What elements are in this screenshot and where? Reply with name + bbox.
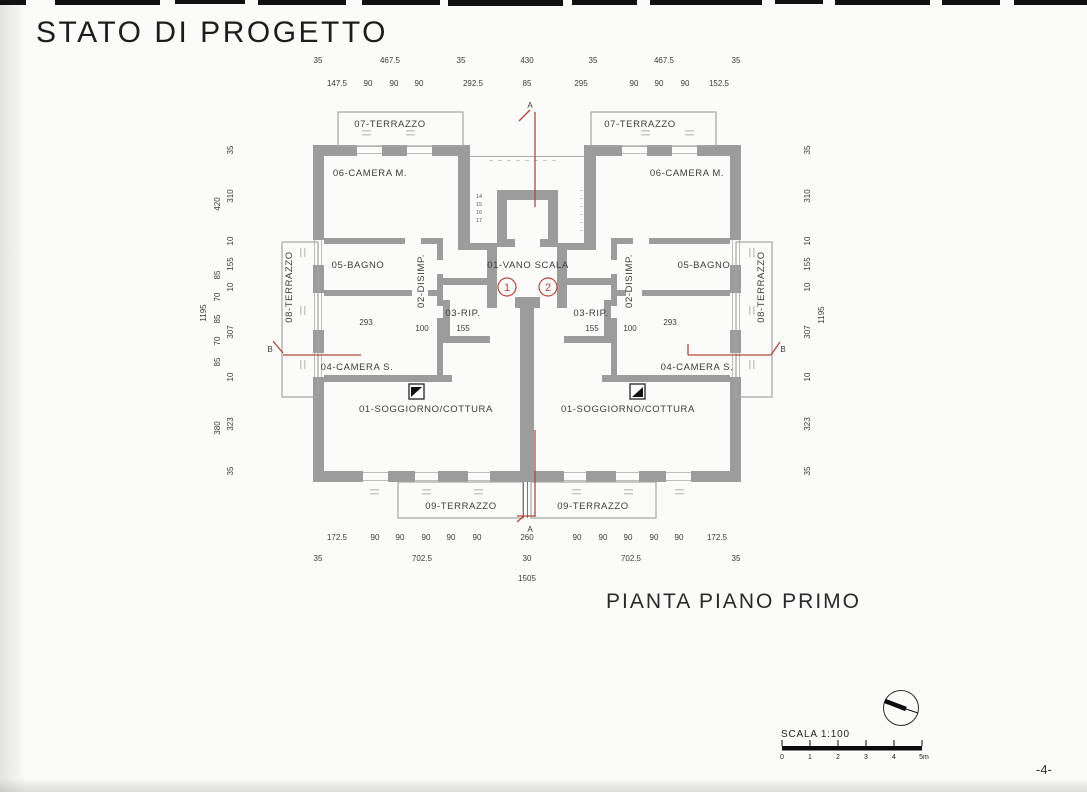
room-label-vano-scala: 01-VANO SCALA — [487, 260, 569, 271]
dimensions-interior: 293 293 100 155 100 155 — [359, 318, 677, 333]
room-label-camera-s-right: 04-CAMERA S. — [661, 362, 734, 373]
dim-top2-4: 292.5 — [463, 79, 484, 88]
door-number-2: 2 — [539, 278, 557, 296]
dim-bot1-6: 260 — [520, 533, 534, 542]
dim-bot1-11: 90 — [675, 533, 684, 542]
dim-left-total: 1195 — [199, 304, 208, 322]
room-label-terrace-side-left: 08-TERRAZZO — [284, 251, 295, 323]
dim-top1-4: 35 — [589, 56, 598, 65]
stair-step-16: 16 — [476, 210, 482, 216]
dim-bot1-7: 90 — [573, 533, 582, 542]
dim-bot2-4: 35 — [732, 554, 741, 563]
dimensions-top: 35 467.5 35 430 35 467.5 35 147.5 90 90 … — [314, 56, 741, 88]
dim-li-0: 35 — [226, 145, 235, 154]
room-label-rip-left: 03-RIP. — [445, 308, 480, 319]
stair-step-17: 17 — [476, 218, 482, 224]
dim-li-2: 10 — [226, 236, 235, 245]
sheet-title: STATO DI PROGETTO — [36, 16, 388, 49]
dim-bot1-5: 90 — [473, 533, 482, 542]
dim-bot1-8: 90 — [599, 533, 608, 542]
room-label-terrace-side-right: 08-TERRAZZO — [756, 251, 767, 323]
scale-bar: SCALA 1:100 0 1 2 3 4 5m — [780, 729, 929, 761]
dim-right-293: 293 — [663, 318, 677, 327]
room-label-bagno-left: 05-BAGNO — [332, 260, 385, 271]
dim-bot1-3: 90 — [422, 533, 431, 542]
dim-li-4: 10 — [226, 282, 235, 291]
dim-bot1-0: 172.5 — [327, 533, 348, 542]
dim-ri-8: 35 — [803, 466, 812, 475]
room-label-camera-m-left: 06-CAMERA M. — [333, 168, 407, 179]
drawing-sheet: STATO DI PROGETTO PIANTA PIANO PRIMO -4- — [0, 0, 1087, 792]
room-label-camera-m-right: 06-CAMERA M. — [650, 168, 724, 179]
dim-right-total: 1195 — [817, 306, 826, 324]
scale-label: SCALA 1:100 — [781, 729, 850, 740]
dim-top1-2: 35 — [457, 56, 466, 65]
section-marker-b-left: B — [267, 345, 272, 354]
page-number: -4- — [1036, 762, 1052, 777]
scale-tick-0: 0 — [780, 754, 784, 761]
dim-lm-5: 85 — [213, 357, 222, 366]
dim-ri-1: 310 — [803, 189, 812, 203]
dim-right-100: 100 — [623, 324, 637, 333]
dim-bot2-3: 702.5 — [621, 554, 642, 563]
dim-left-155: 155 — [456, 324, 470, 333]
dim-li-8: 35 — [226, 466, 235, 475]
room-label-rip-right: 03-RIP. — [573, 308, 608, 319]
dim-ri-4: 10 — [803, 282, 812, 291]
dim-top2-3: 90 — [415, 79, 424, 88]
dim-top1-0: 35 — [314, 56, 323, 65]
dim-li-1: 310 — [226, 189, 235, 203]
dim-bot1-1: 90 — [371, 533, 380, 542]
dim-ri-3: 155 — [803, 257, 812, 271]
stair-step-15: 15 — [476, 202, 482, 208]
dim-top1-6: 35 — [732, 56, 741, 65]
dim-ri-5: 307 — [803, 325, 812, 339]
dim-top1-5: 467.5 — [654, 56, 675, 65]
dim-top2-6: 295 — [574, 79, 588, 88]
dim-top2-2: 90 — [390, 79, 399, 88]
dim-lm-4: 70 — [213, 336, 222, 345]
stair-step-14: 14 — [476, 194, 482, 200]
scan-edge-top — [0, 0, 1087, 6]
scale-tick-4: 4 — [892, 754, 896, 761]
room-label-soggiorno-left: 01-SOGGIORNO/COTTURA — [359, 404, 493, 415]
dim-top2-8: 90 — [655, 79, 664, 88]
dim-bot1-9: 90 — [624, 533, 633, 542]
north-arrow — [884, 691, 919, 726]
room-label-camera-s-left: 04-CAMERA S. — [321, 362, 394, 373]
dim-li-5: 307 — [226, 325, 235, 339]
door-number-1: 1 — [498, 278, 516, 296]
dim-lm-2: 70 — [213, 292, 222, 301]
plan-title: PIANTA PIANO PRIMO — [606, 590, 861, 613]
scale-tick-1: 1 — [808, 754, 812, 761]
scale-tick-3: 3 — [864, 754, 868, 761]
floor-plan-drawing: STATO DI PROGETTO PIANTA PIANO PRIMO -4- — [0, 0, 1087, 792]
dim-bot2-2: 30 — [523, 554, 532, 563]
panel-symbol-right — [630, 384, 645, 399]
dim-lm-1: 85 — [213, 270, 222, 279]
dimensions-left: 35 310 10 155 10 307 10 323 35 420 85 70… — [199, 145, 235, 475]
door-number-1-label: 1 — [504, 282, 510, 294]
dimensions-right: 35 310 10 155 10 307 10 323 35 1195 — [803, 145, 826, 475]
dim-top2-9: 90 — [681, 79, 690, 88]
dim-ri-2: 10 — [803, 236, 812, 245]
scale-tick-5m: 5m — [919, 754, 929, 761]
dim-li-3: 155 — [226, 257, 235, 271]
dim-lm-3: 85 — [213, 314, 222, 323]
room-label-terrace-top-right: 07-TERRAZZO — [604, 119, 676, 130]
dim-top1-3: 430 — [520, 56, 534, 65]
dim-ri-0: 35 — [803, 145, 812, 154]
stair-step-numbers: 14 15 16 17 — [476, 194, 482, 224]
dim-top2-0: 147.5 — [327, 79, 348, 88]
dim-lm-0: 420 — [213, 197, 222, 211]
dimensions-bottom: 172.5 90 90 90 90 90 260 90 90 90 90 90 … — [314, 533, 741, 583]
dim-top2-10: 152.5 — [709, 79, 730, 88]
room-label-disimp-right: 02-DISIMP. — [624, 254, 635, 308]
dim-top2-5: 85 — [523, 79, 532, 88]
room-label-bagno-right: 05-BAGNO — [678, 260, 731, 271]
room-label-disimp-left: 02-DISIMP. — [416, 254, 427, 308]
dim-top2-7: 90 — [630, 79, 639, 88]
dim-li-6: 10 — [226, 372, 235, 381]
room-label-soggiorno-right: 01-SOGGIORNO/COTTURA — [561, 404, 695, 415]
dim-bottom-total: 1505 — [518, 574, 536, 583]
dim-ri-6: 10 — [803, 372, 812, 381]
dim-bot1-4: 90 — [447, 533, 456, 542]
dim-lm-6: 380 — [213, 421, 222, 435]
scale-tick-2: 2 — [836, 754, 840, 761]
dim-bot1-10: 90 — [650, 533, 659, 542]
dim-ri-7: 323 — [803, 417, 812, 431]
room-label-terrace-top-left: 07-TERRAZZO — [354, 119, 426, 130]
dim-bot2-0: 35 — [314, 554, 323, 563]
dim-top1-1: 467.5 — [380, 56, 401, 65]
dim-bot1-2: 90 — [396, 533, 405, 542]
dim-left-100: 100 — [415, 324, 429, 333]
dim-left-293: 293 — [359, 318, 373, 327]
dim-li-7: 323 — [226, 417, 235, 431]
room-label-terrace-bottom-right: 09-TERRAZZO — [557, 501, 629, 512]
dim-right-155: 155 — [585, 324, 599, 333]
dim-bot2-1: 702.5 — [412, 554, 433, 563]
room-label-terrace-bottom-left: 09-TERRAZZO — [425, 501, 497, 512]
section-marker-b-right: B — [780, 345, 785, 354]
dim-top2-1: 90 — [364, 79, 373, 88]
door-number-2-label: 2 — [545, 282, 551, 294]
section-marker-a-top: A — [527, 101, 533, 110]
panel-symbol-left — [409, 384, 424, 399]
dim-bot1-12: 172.5 — [707, 533, 728, 542]
